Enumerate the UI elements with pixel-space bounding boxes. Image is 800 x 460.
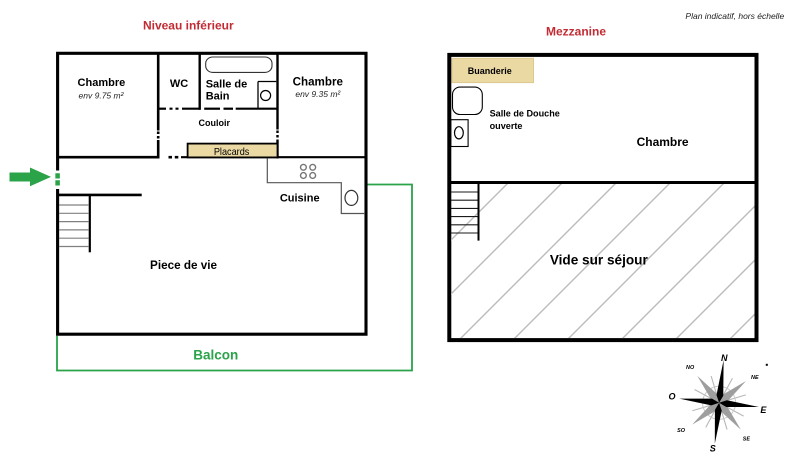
- svg-text:Balcon: Balcon: [193, 348, 238, 363]
- svg-text:Niveau inférieur: Niveau inférieur: [143, 19, 234, 33]
- svg-text:O: O: [668, 392, 675, 402]
- svg-text:N: N: [721, 353, 728, 363]
- svg-text:E: E: [760, 405, 767, 415]
- svg-text:Mezzanine: Mezzanine: [546, 24, 606, 38]
- svg-text:Chambre: Chambre: [293, 76, 344, 89]
- svg-text:SE: SE: [743, 437, 751, 443]
- svg-text:Plan indicatif, hors échelle: Plan indicatif, hors échelle: [685, 11, 784, 21]
- svg-text:WC: WC: [170, 78, 188, 90]
- svg-text:SO: SO: [677, 428, 686, 434]
- svg-text:Salle de Douche: Salle de Douche: [490, 108, 560, 118]
- svg-text:Bain: Bain: [206, 91, 230, 103]
- svg-text:Piece de vie: Piece de vie: [150, 259, 217, 272]
- svg-text:Cuisine: Cuisine: [280, 193, 320, 205]
- svg-text:NO: NO: [686, 365, 695, 371]
- svg-text:Couloir: Couloir: [199, 118, 231, 128]
- svg-text:NE: NE: [751, 375, 759, 381]
- svg-text:ouverte: ouverte: [490, 121, 523, 131]
- svg-text:env 9.75 m²: env 9.75 m²: [79, 90, 125, 100]
- svg-text:env 9.35 m²: env 9.35 m²: [295, 89, 341, 99]
- svg-text:Placards: Placards: [214, 147, 250, 158]
- svg-text:Salle de: Salle de: [206, 78, 248, 90]
- svg-text:Buanderie: Buanderie: [468, 66, 512, 76]
- svg-text:Chambre: Chambre: [637, 135, 689, 149]
- svg-text:Chambre: Chambre: [78, 77, 126, 89]
- svg-text:S: S: [710, 444, 716, 454]
- svg-text:Vide sur séjour: Vide sur séjour: [550, 253, 649, 268]
